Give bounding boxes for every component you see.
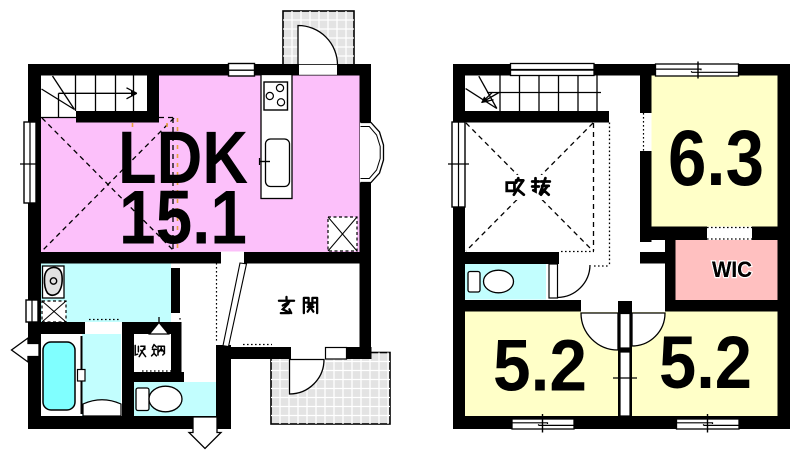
svg-text:WIC: WIC [712,257,752,282]
svg-text:5.2: 5.2 [659,321,752,404]
svg-text:15.1: 15.1 [119,176,247,261]
svg-text:5.2: 5.2 [493,326,587,407]
svg-text:6.3: 6.3 [668,113,764,202]
